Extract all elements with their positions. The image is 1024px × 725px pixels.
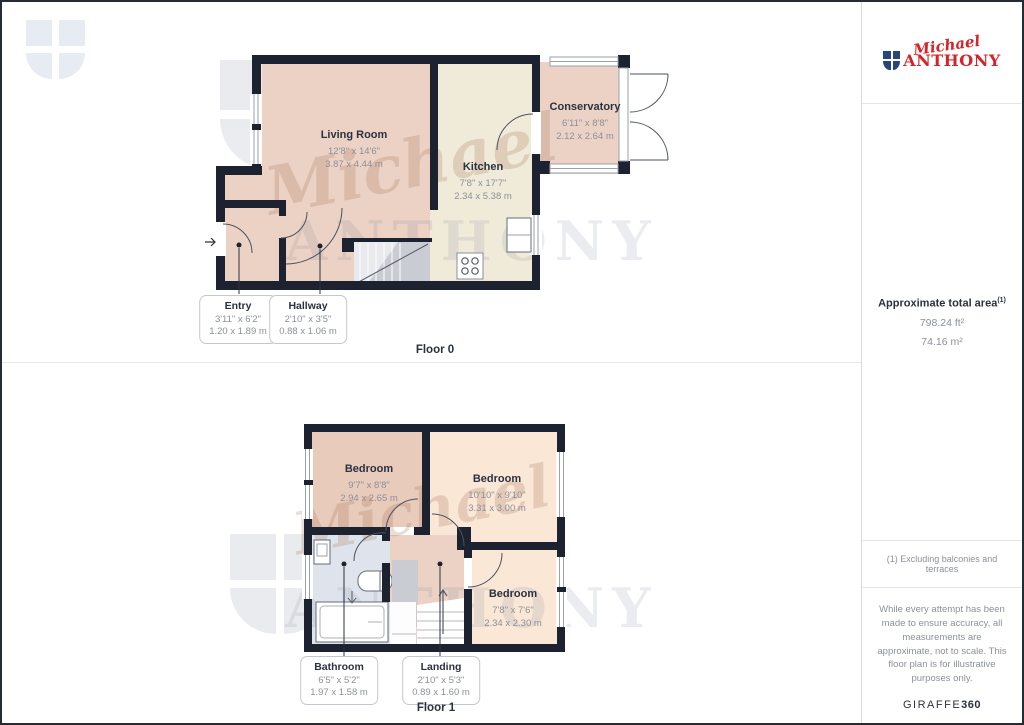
svg-text:2.94 x 2.65 m: 2.94 x 2.65 m [340,493,398,504]
total-area-ft: 798.24 ft² [920,317,964,329]
footnote-marker: (1) [997,297,1006,304]
room-label-living-room: Living Room 12'8" x 14'6" 3.87 x 4.44 m [321,129,388,170]
floors-divider [2,362,861,363]
svg-text:Bedroom: Bedroom [473,473,522,485]
footnote-text: (1) Excluding balconies and terraces [862,540,1022,587]
callout-hallway-imperial: 2'10" x 3'5" [279,314,337,326]
callout-landing-metric: 0.89 x 1.60 m [412,687,470,699]
svg-text:Bedroom: Bedroom [489,588,538,600]
callout-landing-name: Landing [412,661,470,675]
room-label-bedroom2: Bedroom 10'10" x 9'10" 3.31 x 3.00 m [468,473,526,514]
floor-label-1: Floor 1 [417,702,455,714]
floorplan-page: Michael ANTHONY [0,0,1024,725]
svg-text:2.34 x 2.30 m: 2.34 x 2.30 m [484,618,542,629]
svg-text:Living Room: Living Room [321,129,388,141]
callout-bathroom-metric: 1.97 x 1.58 m [310,687,368,699]
total-area-title: Approximate total area(1) [878,297,1006,310]
room-label-bedroom3: Bedroom 7'8" x 7'6" 2.34 x 2.30 m [484,588,542,629]
callout-entry-imperial: 3'11" x 6'2" [209,314,267,326]
callout-entry-name: Entry [209,300,267,314]
entry-arrow-icon [205,238,215,246]
brand-shield-icon [883,51,900,71]
svg-text:7'8" x 17'7": 7'8" x 17'7" [460,178,507,189]
callout-landing: Landing 2'10" x 5'3" 0.89 x 1.60 m [402,656,480,705]
svg-text:Kitchen: Kitchen [463,161,504,173]
callout-entry-metric: 1.20 x 1.89 m [209,326,267,338]
svg-text:10'10" x 9'10": 10'10" x 9'10" [468,490,525,501]
floor-label-0: Floor 0 [416,344,454,356]
disclaimer-section: While every attempt has been made to ens… [862,587,1022,723]
brand-logo: Michael ANTHONY [862,2,1022,104]
callout-hallway: Hallway 2'10" x 3'5" 0.88 x 1.06 m [269,295,347,344]
provider-logo: GIRAFFE360 [874,699,1010,711]
callout-bathroom-name: Bathroom [310,661,368,675]
total-area-section: Approximate total area(1) 798.24 ft² 74.… [862,104,1022,540]
svg-text:3.87 x 4.44 m: 3.87 x 4.44 m [325,159,383,170]
callout-hallway-metric: 0.88 x 1.06 m [279,326,337,338]
info-panel: Michael ANTHONY Approximate total area(1… [861,2,1022,723]
disclaimer-text: While every attempt has been made to ens… [874,603,1010,686]
total-area-m: 74.16 m² [921,336,962,348]
svg-text:7'8" x 7'6": 7'8" x 7'6" [492,605,534,616]
svg-text:Bedroom: Bedroom [345,463,394,475]
kitchen-counter [507,218,531,252]
room-label-bedroom1: Bedroom 9'7" x 8'8" 2.94 x 2.65 m [340,463,398,504]
svg-text:6'11" x 8'8": 6'11" x 8'8" [562,118,608,129]
svg-text:2.12 x 2.64 m: 2.12 x 2.64 m [556,131,614,142]
svg-text:9'7" x 8'8": 9'7" x 8'8" [348,480,390,491]
svg-text:12'8" x 14'6": 12'8" x 14'6" [328,146,380,157]
callout-bathroom-imperial: 6'5" x 5'2" [310,675,368,687]
callout-hallway-name: Hallway [279,300,337,314]
svg-text:2.34 x 5.38 m: 2.34 x 5.38 m [454,191,512,202]
callout-landing-imperial: 2'10" x 5'3" [412,675,470,687]
cupboard [392,560,418,602]
floorplan-canvas: Michael ANTHONY [2,2,861,723]
svg-text:3.31 x 3.00 m: 3.31 x 3.00 m [468,503,526,514]
stairs-floor0 [354,242,430,286]
callout-entry: Entry 3'11" x 6'2" 1.20 x 1.89 m [199,295,277,344]
callout-bathroom: Bathroom 6'5" x 5'2" 1.97 x 1.58 m [300,656,378,705]
svg-text:Conservatory: Conservatory [550,101,622,113]
hob-icon [457,253,483,279]
